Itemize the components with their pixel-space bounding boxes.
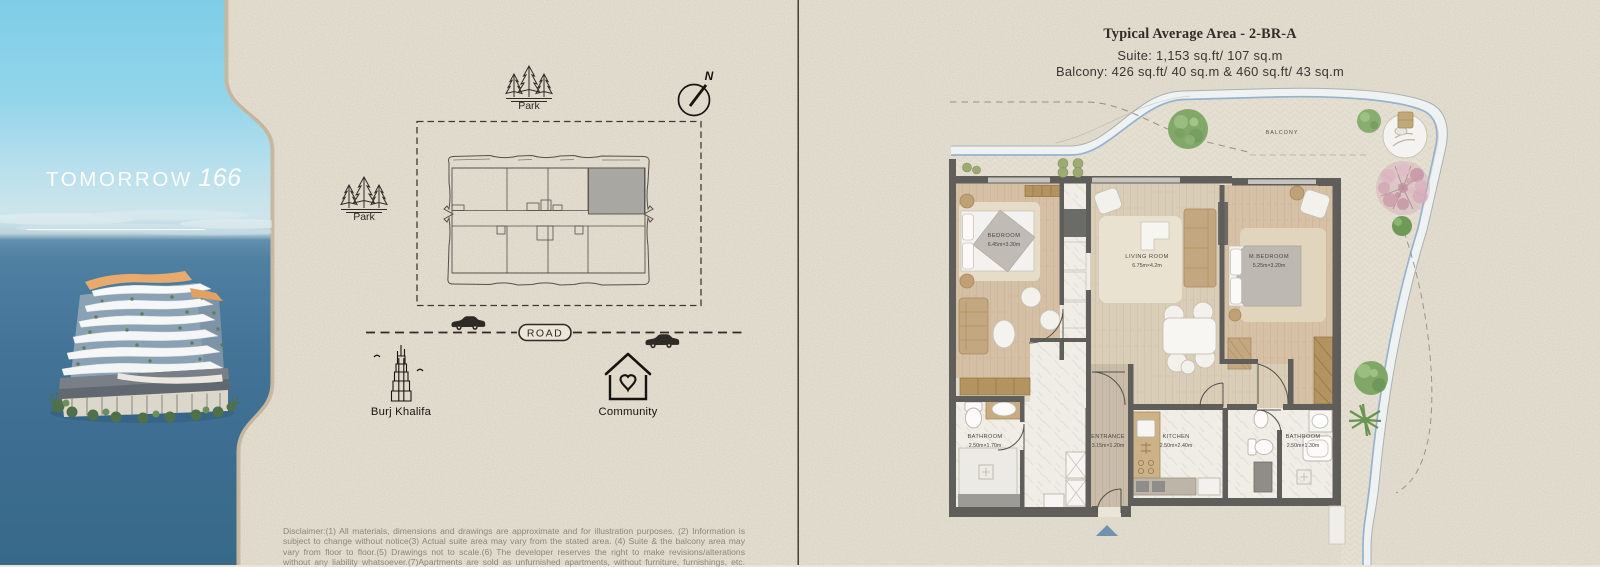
svg-text:BALCONY: BALCONY <box>1266 130 1299 136</box>
svg-text:BATHROOM: BATHROOM <box>1286 434 1321 440</box>
svg-text:2.50m×1.70m: 2.50m×1.70m <box>969 443 1002 449</box>
svg-text:Park: Park <box>518 100 540 112</box>
svg-text:Park: Park <box>353 211 375 223</box>
svg-text:KITCHEN: KITCHEN <box>1162 434 1189 440</box>
svg-text:BATHROOM: BATHROOM <box>968 434 1003 440</box>
svg-text:3.15m×1.20m: 3.15m×1.20m <box>1092 443 1125 449</box>
svg-text:2.50m×1.30m: 2.50m×1.30m <box>1287 443 1320 449</box>
svg-text:BEDROOM: BEDROOM <box>988 233 1021 239</box>
svg-text:Community: Community <box>599 406 658 418</box>
svg-text:6.75m×4.2m: 6.75m×4.2m <box>1132 263 1162 269</box>
svg-text:6.45m×3.30m: 6.45m×3.30m <box>988 242 1021 248</box>
svg-text:2.50m×2.40m: 2.50m×2.40m <box>1160 443 1193 449</box>
svg-text:LIVING ROOM: LIVING ROOM <box>1125 254 1168 260</box>
svg-text:ENTRANCE: ENTRANCE <box>1091 434 1125 440</box>
svg-text:M.BEDROOM: M.BEDROOM <box>1249 254 1289 260</box>
svg-text:N: N <box>705 69 714 83</box>
svg-text:ROAD: ROAD <box>527 328 563 340</box>
svg-text:Burj Khalifa: Burj Khalifa <box>371 406 432 418</box>
svg-text:5.25m×3.20m: 5.25m×3.20m <box>1253 263 1286 269</box>
